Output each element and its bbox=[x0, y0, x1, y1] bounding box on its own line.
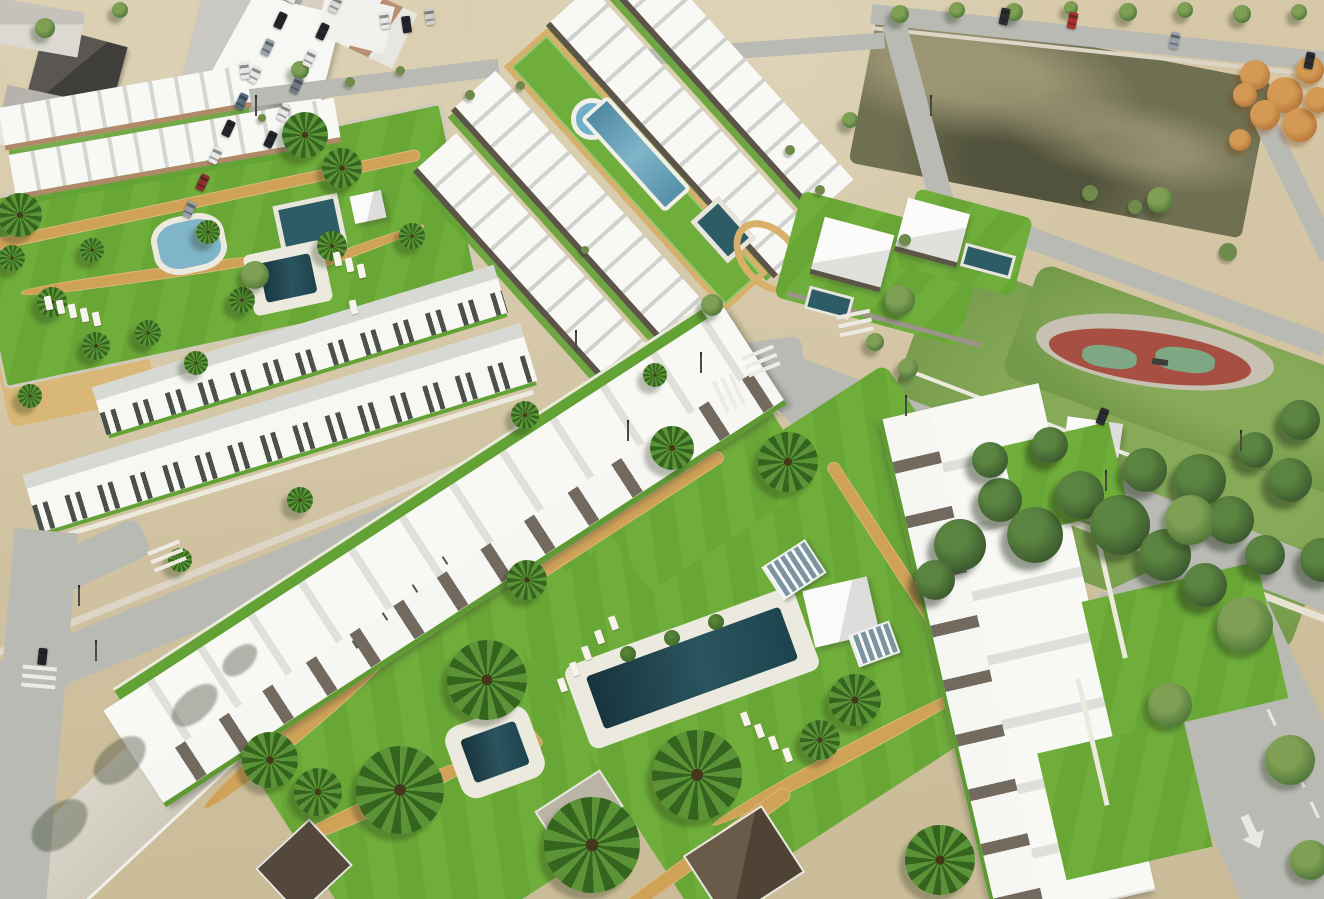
street-lamp bbox=[95, 640, 97, 661]
palm-tree bbox=[399, 223, 425, 249]
palm-tree bbox=[905, 825, 975, 895]
parked-car bbox=[424, 7, 435, 25]
parked-car bbox=[239, 62, 250, 80]
street-lamp bbox=[78, 585, 80, 606]
pine-tree bbox=[915, 560, 955, 600]
tree bbox=[866, 333, 884, 351]
street-lamp bbox=[1105, 470, 1107, 491]
tree bbox=[891, 5, 909, 23]
pool-planter bbox=[708, 614, 724, 630]
bush bbox=[785, 145, 795, 155]
palm-tree bbox=[82, 332, 110, 360]
palm-tree bbox=[829, 674, 881, 726]
dirt-mound bbox=[1229, 129, 1251, 151]
street-lamp bbox=[575, 330, 577, 351]
palm-tree bbox=[0, 193, 42, 237]
pine-tree bbox=[1268, 458, 1312, 502]
tree bbox=[842, 112, 858, 128]
pine-tree bbox=[1123, 448, 1167, 492]
palm-tree bbox=[196, 220, 220, 244]
tree bbox=[1291, 4, 1307, 20]
pine-tree bbox=[1237, 432, 1273, 468]
tree bbox=[949, 2, 965, 18]
street-lamp bbox=[627, 420, 629, 441]
pine-tree bbox=[1007, 507, 1063, 563]
bush bbox=[1219, 243, 1237, 261]
palm-tree bbox=[242, 732, 298, 788]
pool-planter bbox=[664, 630, 680, 646]
palm-tree bbox=[356, 746, 444, 834]
palm-tree bbox=[0, 245, 25, 271]
palm-tree bbox=[758, 432, 818, 492]
palm-tree bbox=[544, 797, 640, 893]
palm-tree bbox=[294, 768, 342, 816]
dirt-mound bbox=[1233, 83, 1257, 107]
palm-tree bbox=[135, 320, 161, 346]
street-lamp bbox=[930, 95, 932, 116]
tree bbox=[1265, 735, 1315, 785]
palm-tree bbox=[282, 112, 328, 158]
tree bbox=[1148, 683, 1192, 727]
palm-tree bbox=[447, 640, 527, 720]
tree bbox=[885, 285, 915, 315]
tree bbox=[1233, 5, 1251, 23]
pine-tree bbox=[1183, 563, 1227, 607]
pine-tree bbox=[1280, 400, 1320, 440]
palm-tree bbox=[800, 720, 840, 760]
tree bbox=[35, 18, 55, 38]
tree bbox=[1217, 597, 1273, 653]
street-lamp bbox=[255, 95, 257, 116]
palm-tree bbox=[287, 487, 313, 513]
bush bbox=[258, 114, 266, 122]
tree bbox=[1290, 840, 1324, 880]
palm-tree bbox=[652, 730, 742, 820]
bush bbox=[815, 185, 825, 195]
palm-tree bbox=[229, 287, 255, 313]
zebra-crossing bbox=[21, 665, 57, 690]
dirt-mound bbox=[1305, 87, 1324, 113]
bush bbox=[899, 234, 911, 246]
dirt-mound bbox=[1283, 108, 1317, 142]
tree bbox=[1147, 187, 1173, 213]
palm-tree bbox=[18, 384, 42, 408]
palm-tree bbox=[184, 351, 208, 375]
tree bbox=[701, 294, 723, 316]
bush bbox=[1128, 200, 1142, 214]
bush bbox=[581, 246, 589, 254]
palm-tree bbox=[80, 238, 104, 262]
tree bbox=[1177, 2, 1193, 18]
bush bbox=[1082, 185, 1098, 201]
tree bbox=[898, 358, 918, 378]
lot-east-road bbox=[1255, 118, 1324, 262]
palm-tree bbox=[511, 401, 539, 429]
tree bbox=[112, 2, 128, 18]
pine-tree bbox=[972, 442, 1008, 478]
tree bbox=[1165, 495, 1215, 545]
pool-planter bbox=[620, 646, 636, 662]
bush bbox=[516, 81, 525, 90]
bush bbox=[396, 66, 405, 75]
bush bbox=[465, 90, 475, 100]
palm-tree bbox=[507, 560, 547, 600]
palm-tree bbox=[317, 231, 347, 261]
palm-tree bbox=[650, 426, 694, 470]
tree bbox=[241, 261, 269, 289]
street-lamp bbox=[1240, 430, 1242, 451]
street-lamp bbox=[700, 352, 702, 373]
palm-tree bbox=[643, 363, 667, 387]
tree bbox=[1119, 3, 1137, 21]
aerial-render-photo bbox=[0, 0, 1324, 899]
parked-car bbox=[37, 648, 48, 666]
street-lamp bbox=[905, 395, 907, 416]
dirt-mound bbox=[1250, 100, 1280, 130]
palm-tree bbox=[322, 148, 362, 188]
bush bbox=[345, 77, 355, 87]
pine-tree bbox=[1245, 535, 1285, 575]
pine-tree bbox=[1032, 427, 1068, 463]
